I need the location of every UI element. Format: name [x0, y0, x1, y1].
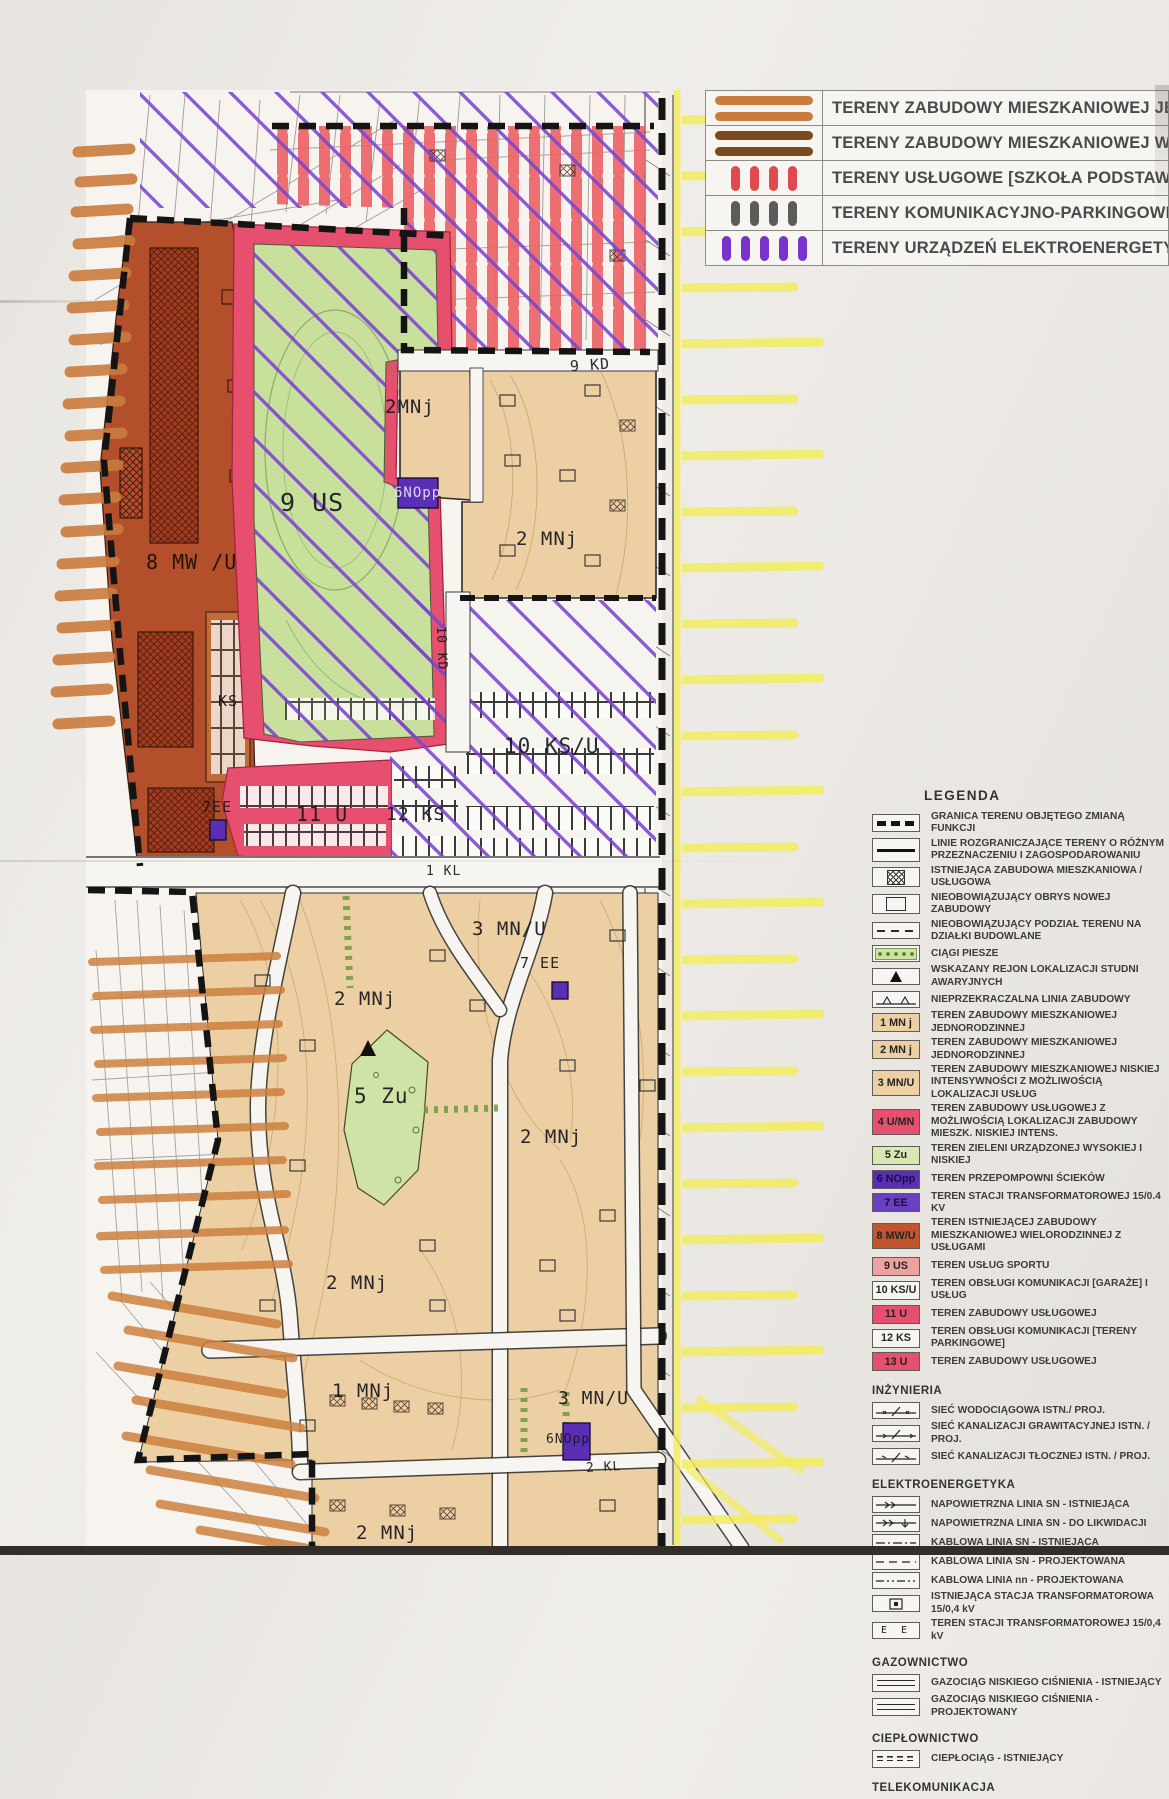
zone-label: 8 MW /U [146, 550, 237, 574]
zone-desc: TEREN PRZEPOMPOWNI ŚCIEKÓW [920, 1173, 1105, 1185]
utility-label: GAZOCIĄG NISKIEGO CIŚNIENIA - ISTNIEJĄCY [920, 1677, 1162, 1689]
top-legend-row: TERENY KOMUNIKACYJNO-PARKINGOWE [706, 196, 1168, 231]
street-label: 9 KD [569, 355, 610, 376]
road-divider [470, 368, 483, 502]
utility-label: SIEĆ KANALIZACJI TŁOCZNEJ ISTN. / PROJ. [920, 1451, 1150, 1463]
top-legend-label: TERENY USŁUGOWE [SZKOŁA PODSTAWO [822, 161, 1168, 195]
zone-desc: TEREN USŁUG SPORTU [920, 1260, 1049, 1272]
legend-panel: LEGENDA GRANICA TERENU OBJĘTEGO ZMIANĄ F… [872, 788, 1169, 1799]
dividing-line-icon [872, 838, 920, 862]
road-10kd [446, 592, 470, 752]
zone-swatch-5zu: 5 Zu [872, 1146, 920, 1165]
zone-label: 2 MNj [520, 1126, 582, 1148]
zone-desc: TEREN OBSŁUGI KOMUNIKACJI [GARAŻE] I USŁ… [920, 1278, 1169, 1303]
top-legend-box: TERENY ZABUDOWY MIESZKANIOWEJ JED TERENY… [705, 90, 1169, 266]
legend-symbol-label: WSKAZANY REJON LOKALIZACJI STUDNI AWARYJ… [920, 964, 1169, 989]
boundary-dash-icon [872, 814, 920, 832]
zone-label: 7EE [202, 798, 232, 816]
zone-desc: TEREN ZABUDOWY MIESZKANIOWEJ NISKIEJ INT… [920, 1064, 1169, 1101]
zone-label: 2 MNj [356, 1522, 418, 1544]
legend-symbol-label: ISTNIEJĄCA ZABUDOWA MIESZKANIOWA / USŁUG… [920, 865, 1169, 890]
zone-label: 6NOpp [394, 485, 441, 501]
zone-desc: TEREN ISTNIEJĄCEJ ZABUDOWY MIESZKANIOWEJ… [920, 1217, 1169, 1254]
gas-existing-icon [872, 1674, 920, 1692]
zone-label: 2 MNj [326, 1272, 388, 1294]
emergency-well-icon [872, 968, 920, 985]
legend-symbol-label: GRANICA TERENU OBJĘTEGO ZMIANĄ FUNKCJI [920, 811, 1169, 836]
zone-swatch-10ksu: 10 KS/U [872, 1281, 920, 1300]
utility-label: KABLOWA LINIA SN - PROJEKTOWANA [920, 1556, 1125, 1568]
scanned-zoning-plan-page: { "top_legend": { "items": [ {"label": "… [0, 0, 1169, 1555]
utility-label: NAPOWIETRZNA LINIA SN - DO LIKWIDACJI [920, 1518, 1146, 1530]
utility-label: NAPOWIETRZNA LINIA SN - ISTNIEJĄCA [920, 1499, 1129, 1511]
zone-desc: TEREN ZABUDOWY USŁUGOWEJ Z MOŻLIWOŚCIĄ L… [920, 1103, 1169, 1140]
street-label: 1 KL [426, 864, 461, 879]
top-legend-row: TERENY ZABUDOWY MIESZKANIOWEJ JED [706, 91, 1168, 126]
gas-planned-icon [872, 1698, 920, 1716]
page-bottom-edge [0, 1546, 1169, 1555]
street-label: 2 KL [586, 1459, 622, 1476]
legend-symbol-label: NIEOBOWIĄZUJĄCY PODZIAŁ TERENU NA DZIAŁK… [920, 919, 1169, 944]
zone-label: 2 MNj [334, 988, 396, 1010]
utility-label: ISTNIEJĄCA STACJA TRANSFORMATOROWA 15/0,… [920, 1591, 1169, 1616]
zone-swatch-9us: 9 US [872, 1257, 920, 1276]
utility-label: GAZOCIĄG NISKIEGO CIŚNIENIA - PROJEKTOWA… [920, 1694, 1169, 1719]
top-legend-row: TERENY ZABUDOWY MIESZKANIOWEJ WIE [706, 126, 1168, 161]
building-limit-line-icon [872, 991, 920, 1008]
brown-horizontal-strokes-icon [706, 126, 822, 160]
zone-swatch-6nopp: 6 NOpp [872, 1170, 920, 1189]
section-title-gazownictwo: GAZOWNICTWO [872, 1657, 1169, 1669]
water-network-icon [872, 1402, 920, 1419]
zone-swatch-2mnj: 2 MN j [872, 1040, 920, 1059]
zone-label: 2 MNj [516, 528, 578, 550]
top-legend-row: TERENY URZĄDZEŃ ELEKTROENERGETYC [706, 231, 1168, 265]
overhead-sn-existing-icon [872, 1496, 920, 1513]
gravity-sewer-icon [872, 1425, 920, 1442]
zone-label: 12 KS [386, 804, 445, 825]
transformer-site-icon: E E [872, 1622, 920, 1639]
overhead-sn-liquidation-icon [872, 1515, 920, 1532]
legend-symbol-label: NIEPRZEKRACZALNA LINIA ZABUDOWY [920, 994, 1131, 1006]
zone-swatch-12ks: 12 KS [872, 1329, 920, 1348]
top-legend-label: TERENY KOMUNIKACYJNO-PARKINGOWE [822, 196, 1168, 230]
road-1kl [86, 856, 660, 888]
zone-2mnj-upper-right [462, 368, 656, 598]
utility-label: KABLOWA LINIA nn - PROJEKTOWANA [920, 1575, 1124, 1587]
top-legend-label: TERENY ZABUDOWY MIESZKANIOWEJ WIE [822, 126, 1168, 160]
legend-title: LEGENDA [924, 788, 1169, 803]
zone-swatch-11u: 11 U [872, 1305, 920, 1324]
zone-swatch-7ee: 7 EE [872, 1193, 920, 1212]
orange-horizontal-strokes-icon [706, 91, 822, 125]
street-label: 10 KD [433, 626, 450, 671]
utility-label: TEREN STACJI TRANSFORMATOROWEJ 15/0,4 kV [920, 1618, 1169, 1643]
zone-label: 11 U [296, 802, 348, 826]
section-title-telekomunikacja: TELEKOMUNIKACJA [872, 1782, 1169, 1794]
zone-label: 10 KS/U [504, 734, 600, 758]
gray-vertical-strokes-icon [706, 196, 822, 230]
zone-desc: TEREN OBSŁUGI KOMUNIKACJI [TERENY PARKIN… [920, 1326, 1169, 1351]
zone-label: 2MNj [385, 396, 435, 418]
cable-nn-planned-icon [872, 1572, 920, 1589]
zone-label: KS [218, 692, 238, 710]
purple-vertical-strokes-icon [706, 231, 822, 265]
zone-desc: TEREN ZIELENI URZĄDZONEJ WYSOKIEJ I NISK… [920, 1143, 1169, 1168]
new-building-outline-icon [872, 894, 920, 914]
legend-symbol-label: NIEOBOWIĄZUJĄCY OBRYS NOWEJ ZABUDOWY [920, 892, 1169, 917]
pedestrian-path-icon [872, 945, 920, 962]
zone-desc: TEREN ZABUDOWY MIESZKANIOWEJ JEDNORODZIN… [920, 1037, 1169, 1062]
red-vertical-strokes-icon [706, 161, 822, 195]
cable-sn-planned-icon [872, 1553, 920, 1570]
yellow-highlighter-marks [677, 90, 832, 1548]
zone-swatch-3mnu: 3 MN/U [872, 1070, 920, 1096]
utility-label: SIEĆ WODOCIĄGOWA ISTN./ PROJ. [920, 1405, 1105, 1417]
utility-label: CIEPŁOCIĄG - ISTNIEJĄCY [920, 1753, 1063, 1765]
zone-label: 9 US [280, 488, 344, 517]
top-legend-label: TERENY URZĄDZEŃ ELEKTROENERGETYC [822, 231, 1168, 265]
legend-symbol-label: LINIE ROZGRANICZAJĄCE TERENY O RÓŻNYM PR… [920, 838, 1169, 863]
zone-label: 1 MNj [332, 1380, 394, 1402]
zone-label: 3 MN/U [472, 918, 547, 940]
utility-label: SIEĆ KANALIZACJI GRAWITACYJNEJ ISTN. / P… [920, 1421, 1169, 1446]
zone-label: 6NOpp [546, 1432, 590, 1447]
zone-label: 3 MN/U [558, 1388, 629, 1409]
zone-desc: TEREN ZABUDOWY MIESZKANIOWEJ JEDNORODZIN… [920, 1010, 1169, 1035]
zone-swatch-4umn: 4 U/MN [872, 1109, 920, 1135]
zone-swatch-13u: 13 U [872, 1352, 920, 1371]
top-legend-label: TERENY ZABUDOWY MIESZKANIOWEJ JED [822, 91, 1168, 125]
zone-desc: TEREN ZABUDOWY USŁUGOWEJ [920, 1356, 1097, 1368]
top-legend-row: TERENY USŁUGOWE [SZKOŁA PODSTAWO [706, 161, 1168, 196]
section-title-inzynieria: INŻYNIERIA [872, 1385, 1169, 1397]
existing-transformer-icon [872, 1595, 920, 1612]
legend-symbol-label: CIĄGI PIESZE [920, 948, 998, 960]
heat-pipe-existing-icon [872, 1750, 920, 1768]
existing-building-icon [872, 867, 920, 887]
section-title-elektroenergetyka: ELEKTROENERGETYKA [872, 1479, 1169, 1491]
plot-division-dash-icon [872, 922, 920, 939]
section-title-cieplownictwo: CIEPŁOWNICTWO [872, 1733, 1169, 1745]
zone-label: 5 Zu [354, 1084, 409, 1108]
zone-swatch-8mwu: 8 MW/U [872, 1223, 920, 1249]
zone-label: 7 EE [520, 954, 560, 972]
pressure-sewer-icon [872, 1448, 920, 1465]
zone-desc: TEREN STACJI TRANSFORMATOROWEJ 15/0.4 KV [920, 1191, 1169, 1216]
zone-swatch-1mnj: 1 MN j [872, 1013, 920, 1032]
zone-desc: TEREN ZABUDOWY USŁUGOWEJ [920, 1308, 1097, 1320]
